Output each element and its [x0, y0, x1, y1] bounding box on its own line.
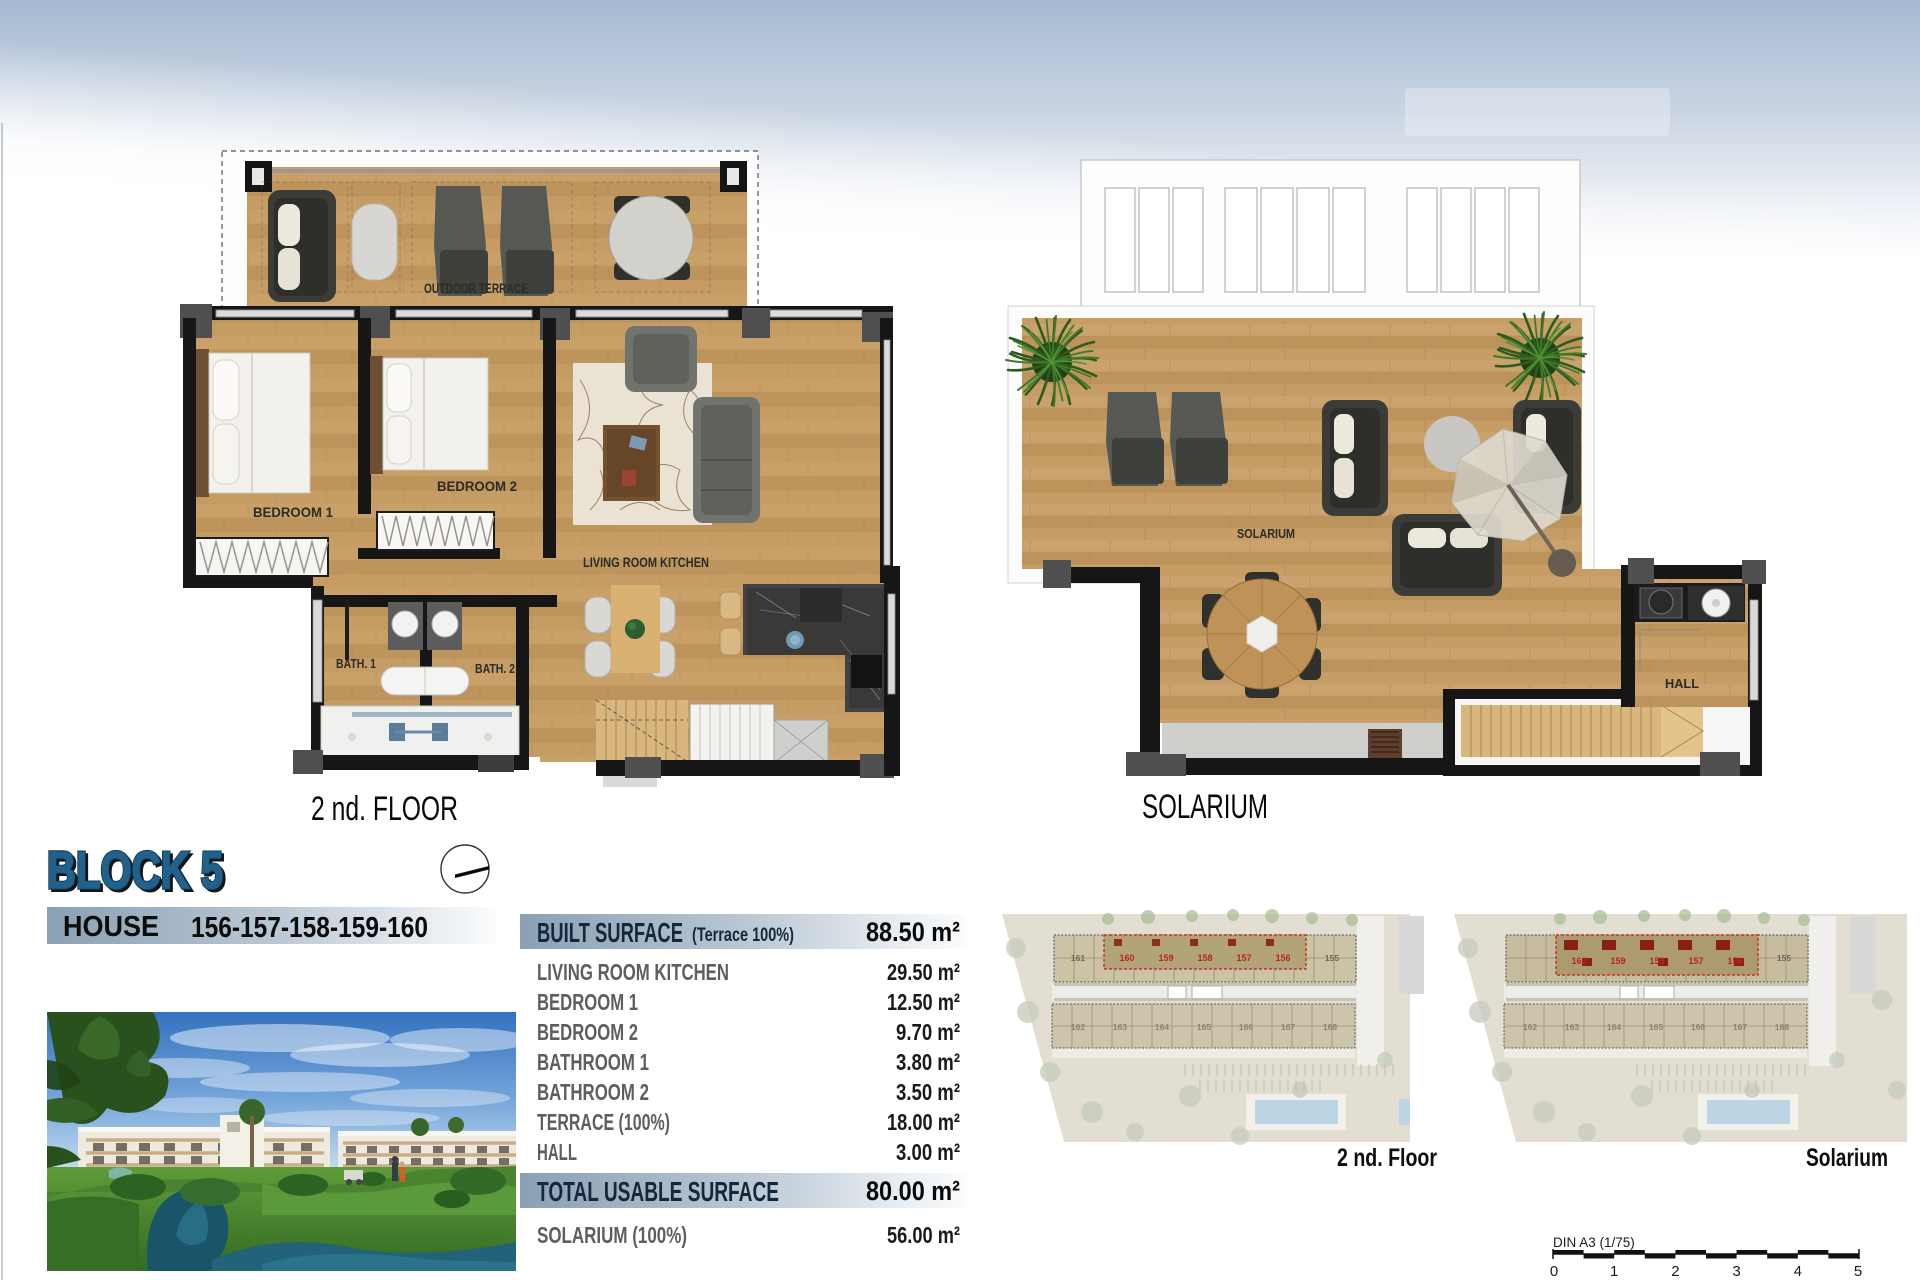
svg-text:165: 165 [1197, 1022, 1211, 1032]
svg-text:HALL: HALL [1665, 676, 1699, 691]
svg-text:155: 155 [1325, 953, 1339, 963]
svg-text:166: 166 [1691, 1022, 1705, 1032]
svg-text:LIVING ROOM KITCHEN: LIVING ROOM KITCHEN [583, 554, 709, 570]
svg-text:2 nd. FLOOR: 2 nd. FLOOR [311, 790, 458, 828]
svg-text:168: 168 [1323, 1022, 1337, 1032]
svg-text:4: 4 [1794, 1263, 1802, 1280]
svg-text:155: 155 [1777, 953, 1791, 963]
svg-text:9.70 m²: 9.70 m² [896, 1019, 960, 1045]
svg-text:56.00 m²: 56.00 m² [887, 1222, 960, 1248]
svg-text:BATH. 1: BATH. 1 [336, 657, 376, 671]
svg-text:3: 3 [1732, 1263, 1740, 1280]
svg-text:160: 160 [1571, 956, 1586, 966]
svg-text:167: 167 [1733, 1022, 1747, 1032]
svg-text:BATHROOM 2: BATHROOM 2 [537, 1079, 649, 1105]
svg-text:BEDROOM 2: BEDROOM 2 [437, 479, 517, 494]
svg-text:SOLARIUM: SOLARIUM [1142, 788, 1268, 826]
svg-text:BLOCK 5: BLOCK 5 [47, 842, 223, 900]
svg-text:165: 165 [1649, 1022, 1663, 1032]
svg-text:SOLARIUM: SOLARIUM [1237, 526, 1295, 541]
svg-text:156: 156 [1275, 953, 1290, 963]
svg-text:3.80 m²: 3.80 m² [896, 1049, 960, 1075]
svg-text:157: 157 [1236, 953, 1251, 963]
svg-text:BUILT SURFACE: BUILT SURFACE [537, 917, 683, 948]
svg-text:LIVING ROOM KITCHEN: LIVING ROOM KITCHEN [537, 959, 729, 985]
svg-text:156: 156 [1727, 956, 1742, 966]
svg-text:BEDROOM 1: BEDROOM 1 [253, 505, 333, 520]
svg-text:BATH. 2: BATH. 2 [475, 662, 515, 676]
svg-text:3.50 m²: 3.50 m² [896, 1079, 960, 1105]
svg-text:156-157-158-159-160: 156-157-158-159-160 [191, 912, 428, 944]
svg-text:159: 159 [1610, 956, 1625, 966]
svg-text:TOTAL USABLE SURFACE: TOTAL USABLE SURFACE [537, 1176, 779, 1207]
svg-text:162: 162 [1523, 1022, 1537, 1032]
svg-text:163: 163 [1113, 1022, 1127, 1032]
svg-text:158: 158 [1197, 953, 1212, 963]
svg-text:3.00 m²: 3.00 m² [896, 1139, 960, 1165]
svg-text:HALL: HALL [537, 1139, 577, 1165]
svg-text:163: 163 [1565, 1022, 1579, 1032]
svg-text:159: 159 [1158, 953, 1173, 963]
svg-text:164: 164 [1155, 1022, 1169, 1032]
svg-text:2: 2 [1671, 1263, 1679, 1280]
svg-text:161: 161 [1071, 953, 1085, 963]
svg-text:12.50 m²: 12.50 m² [887, 989, 960, 1015]
svg-text:166: 166 [1239, 1022, 1253, 1032]
svg-text:88.50 m²: 88.50 m² [866, 917, 960, 947]
svg-text:164: 164 [1607, 1022, 1621, 1032]
svg-text:162: 162 [1071, 1022, 1085, 1032]
svg-text:SOLARIUM (100%): SOLARIUM (100%) [537, 1222, 687, 1248]
svg-text:160: 160 [1119, 953, 1134, 963]
svg-text:5: 5 [1854, 1263, 1862, 1280]
svg-text:1: 1 [1610, 1263, 1618, 1280]
svg-text:157: 157 [1688, 956, 1703, 966]
svg-text:0: 0 [1550, 1263, 1558, 1280]
svg-text:158: 158 [1649, 956, 1664, 966]
svg-text:(Terrace 100%): (Terrace 100%) [692, 925, 794, 946]
svg-text:BEDROOM 1: BEDROOM 1 [537, 989, 638, 1015]
svg-text:Solarium: Solarium [1806, 1144, 1888, 1172]
svg-text:167: 167 [1281, 1022, 1295, 1032]
svg-text:OUTDOOR TERRACE: OUTDOOR TERRACE [424, 280, 528, 296]
svg-text:80.00 m²: 80.00 m² [866, 1176, 960, 1206]
svg-text:18.00 m²: 18.00 m² [887, 1109, 960, 1135]
svg-text:HOUSE: HOUSE [63, 911, 159, 943]
svg-text:2 nd. Floor: 2 nd. Floor [1337, 1144, 1437, 1172]
svg-text:BEDROOM 2: BEDROOM 2 [537, 1019, 638, 1045]
svg-text:168: 168 [1775, 1022, 1789, 1032]
svg-text:BATHROOM 1: BATHROOM 1 [537, 1049, 649, 1075]
svg-text:29.50 m²: 29.50 m² [887, 959, 960, 985]
svg-text:TERRACE (100%): TERRACE (100%) [537, 1109, 670, 1135]
svg-text:DIN A3 (1/75): DIN A3 (1/75) [1553, 1235, 1635, 1250]
